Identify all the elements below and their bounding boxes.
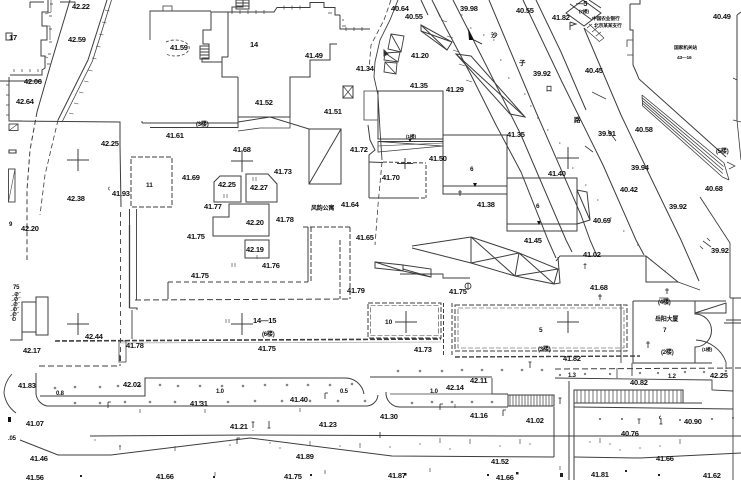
svg-text:41.73: 41.73 xyxy=(414,345,432,354)
svg-text:41.83: 41.83 xyxy=(18,381,36,390)
svg-text:40.55: 40.55 xyxy=(405,12,423,21)
svg-text:41.16: 41.16 xyxy=(470,411,488,420)
svg-text:41.73: 41.73 xyxy=(274,167,292,176)
svg-text:40.69: 40.69 xyxy=(593,216,611,225)
svg-text:41.38: 41.38 xyxy=(477,200,495,209)
svg-text:39.91: 39.91 xyxy=(598,129,616,138)
svg-text:41.64: 41.64 xyxy=(341,200,360,209)
svg-text:40.68: 40.68 xyxy=(705,184,723,193)
svg-text:41.87: 41.87 xyxy=(388,471,406,480)
svg-text:(4楼): (4楼) xyxy=(658,298,671,306)
svg-text:1.0: 1.0 xyxy=(216,389,225,395)
svg-text:0.5: 0.5 xyxy=(340,389,349,395)
svg-text:39.98: 39.98 xyxy=(460,4,478,13)
svg-text:路: 路 xyxy=(574,115,581,124)
svg-text:5: 5 xyxy=(539,327,543,334)
svg-text:42.17: 42.17 xyxy=(23,346,41,355)
svg-text:42.14: 42.14 xyxy=(446,383,465,392)
svg-text:41.75: 41.75 xyxy=(284,472,302,480)
svg-text:岳阳大厦: 岳阳大厦 xyxy=(655,315,679,323)
svg-text:41.52: 41.52 xyxy=(491,457,509,466)
svg-text:—5: —5 xyxy=(576,0,587,8)
svg-text:40.58: 40.58 xyxy=(635,125,653,134)
svg-text:41.40: 41.40 xyxy=(290,395,308,404)
svg-text:39.92: 39.92 xyxy=(669,202,687,211)
svg-text:6: 6 xyxy=(470,166,474,173)
svg-text:40.45: 40.45 xyxy=(585,66,603,75)
svg-text:41.65: 41.65 xyxy=(356,233,374,242)
svg-text:41.50: 41.50 xyxy=(429,154,447,163)
svg-text:.05: .05 xyxy=(8,436,17,442)
svg-text:41.82: 41.82 xyxy=(563,354,581,363)
svg-text:43—16: 43—16 xyxy=(677,55,692,61)
svg-text:41.20: 41.20 xyxy=(411,51,429,60)
svg-text:42.38: 42.38 xyxy=(67,194,85,203)
svg-text:42.20: 42.20 xyxy=(21,224,39,233)
svg-text:41.52: 41.52 xyxy=(255,98,273,107)
svg-text:40.82: 40.82 xyxy=(630,378,648,387)
svg-text:(1楼): (1楼) xyxy=(702,346,712,353)
svg-text:40.49: 40.49 xyxy=(713,12,731,21)
svg-text:41.07: 41.07 xyxy=(26,419,44,428)
svg-text:40.55: 40.55 xyxy=(516,6,534,15)
svg-text:41.68: 41.68 xyxy=(233,145,251,154)
svg-text:11: 11 xyxy=(146,182,153,189)
svg-text:41.02: 41.02 xyxy=(583,250,601,259)
svg-text:41.78: 41.78 xyxy=(276,215,294,224)
svg-text:中国农业银行: 中国农业银行 xyxy=(592,15,620,22)
svg-text:41.23: 41.23 xyxy=(319,420,337,429)
svg-text:41.72: 41.72 xyxy=(350,145,368,154)
svg-text:39.92: 39.92 xyxy=(711,246,729,255)
svg-text:41.78: 41.78 xyxy=(126,341,144,350)
svg-text:沙: 沙 xyxy=(491,31,498,39)
svg-text:41.46: 41.46 xyxy=(30,454,48,463)
svg-text:6: 6 xyxy=(536,203,540,210)
svg-text:41.93: 41.93 xyxy=(112,189,130,198)
svg-text:41.81: 41.81 xyxy=(591,470,609,479)
svg-text:(1楼): (1楼) xyxy=(406,133,416,140)
svg-text:42.11: 42.11 xyxy=(470,376,487,385)
svg-text:41.21: 41.21 xyxy=(230,422,248,431)
svg-text:39.94: 39.94 xyxy=(631,163,650,172)
svg-text:42.19: 42.19 xyxy=(246,245,264,254)
svg-text:41.40: 41.40 xyxy=(548,169,566,178)
svg-text:(6楼): (6楼) xyxy=(262,330,275,338)
svg-text:42.44: 42.44 xyxy=(85,332,104,341)
svg-text:42.64: 42.64 xyxy=(16,97,35,106)
svg-text:子: 子 xyxy=(519,59,526,67)
svg-text:41.75: 41.75 xyxy=(187,232,205,241)
svg-text:(3楼): (3楼) xyxy=(538,345,551,353)
svg-text:41.29: 41.29 xyxy=(446,85,464,94)
svg-text:41.30: 41.30 xyxy=(380,412,398,421)
svg-text:41.59: 41.59 xyxy=(170,43,188,52)
svg-text:41.02: 41.02 xyxy=(526,416,544,425)
svg-text:41.34: 41.34 xyxy=(356,64,375,73)
svg-text:41.35: 41.35 xyxy=(410,81,428,90)
svg-text:(5楼): (5楼) xyxy=(716,147,729,155)
svg-text:41.56: 41.56 xyxy=(26,473,44,480)
svg-text:41.69: 41.69 xyxy=(182,173,200,182)
svg-text:1.0: 1.0 xyxy=(430,389,439,395)
svg-text:41.66: 41.66 xyxy=(656,454,674,463)
svg-text:41.76: 41.76 xyxy=(262,261,280,270)
svg-text:1.3: 1.3 xyxy=(568,373,577,379)
svg-text:风韵公寓: 风韵公寓 xyxy=(311,204,334,212)
svg-text:41.35: 41.35 xyxy=(507,130,525,139)
svg-text:41.51: 41.51 xyxy=(324,107,342,116)
svg-text:14: 14 xyxy=(250,40,259,49)
svg-text:(2楼): (2楼) xyxy=(661,348,674,356)
svg-text:41.89: 41.89 xyxy=(296,452,314,461)
svg-text:40.42: 40.42 xyxy=(620,185,638,194)
svg-text:40.90: 40.90 xyxy=(684,417,702,426)
svg-text:42.27: 42.27 xyxy=(250,183,268,192)
svg-text:10: 10 xyxy=(385,319,393,326)
svg-text:41.77: 41.77 xyxy=(204,202,222,211)
svg-text:41.61: 41.61 xyxy=(166,131,184,140)
svg-text:口: 口 xyxy=(546,86,552,93)
svg-text:42.06: 42.06 xyxy=(24,77,42,86)
svg-text:41.49: 41.49 xyxy=(305,51,323,60)
svg-text:1.2: 1.2 xyxy=(668,374,677,380)
svg-text:41.70: 41.70 xyxy=(382,173,400,182)
svg-text:42.25: 42.25 xyxy=(101,139,119,148)
svg-text:41.62: 41.62 xyxy=(703,471,721,480)
svg-text:(3楼): (3楼) xyxy=(196,120,209,128)
svg-text:(7楼): (7楼) xyxy=(579,8,589,15)
svg-text:41.68: 41.68 xyxy=(590,283,608,292)
svg-text:北京某某支行: 北京某某支行 xyxy=(594,22,622,29)
svg-text:42.02: 42.02 xyxy=(123,380,141,389)
svg-text:42.25: 42.25 xyxy=(710,371,728,380)
svg-text:41.79: 41.79 xyxy=(347,286,365,295)
svg-text:41.75: 41.75 xyxy=(191,271,209,280)
svg-text:39.92: 39.92 xyxy=(533,69,551,78)
svg-text:41.75: 41.75 xyxy=(449,287,467,296)
svg-text:14—15: 14—15 xyxy=(253,316,276,325)
svg-text:17: 17 xyxy=(9,33,17,42)
svg-text:41.31: 41.31 xyxy=(190,399,208,408)
svg-text:42.22: 42.22 xyxy=(72,2,90,11)
svg-text:41.66: 41.66 xyxy=(156,472,174,480)
svg-text:40.76: 40.76 xyxy=(621,429,639,438)
svg-text:国家机关站: 国家机关站 xyxy=(674,44,697,51)
svg-text:41.66: 41.66 xyxy=(496,473,514,480)
svg-text:75: 75 xyxy=(13,285,20,291)
svg-text:42.59: 42.59 xyxy=(68,35,86,44)
svg-text:41.82: 41.82 xyxy=(552,13,570,22)
svg-text:42.20: 42.20 xyxy=(246,218,264,227)
svg-text:41.75: 41.75 xyxy=(258,344,276,353)
svg-text:7: 7 xyxy=(663,327,667,334)
svg-text:0.8: 0.8 xyxy=(56,391,65,397)
svg-text:41.45: 41.45 xyxy=(524,236,542,245)
svg-text:42.25: 42.25 xyxy=(218,180,236,189)
